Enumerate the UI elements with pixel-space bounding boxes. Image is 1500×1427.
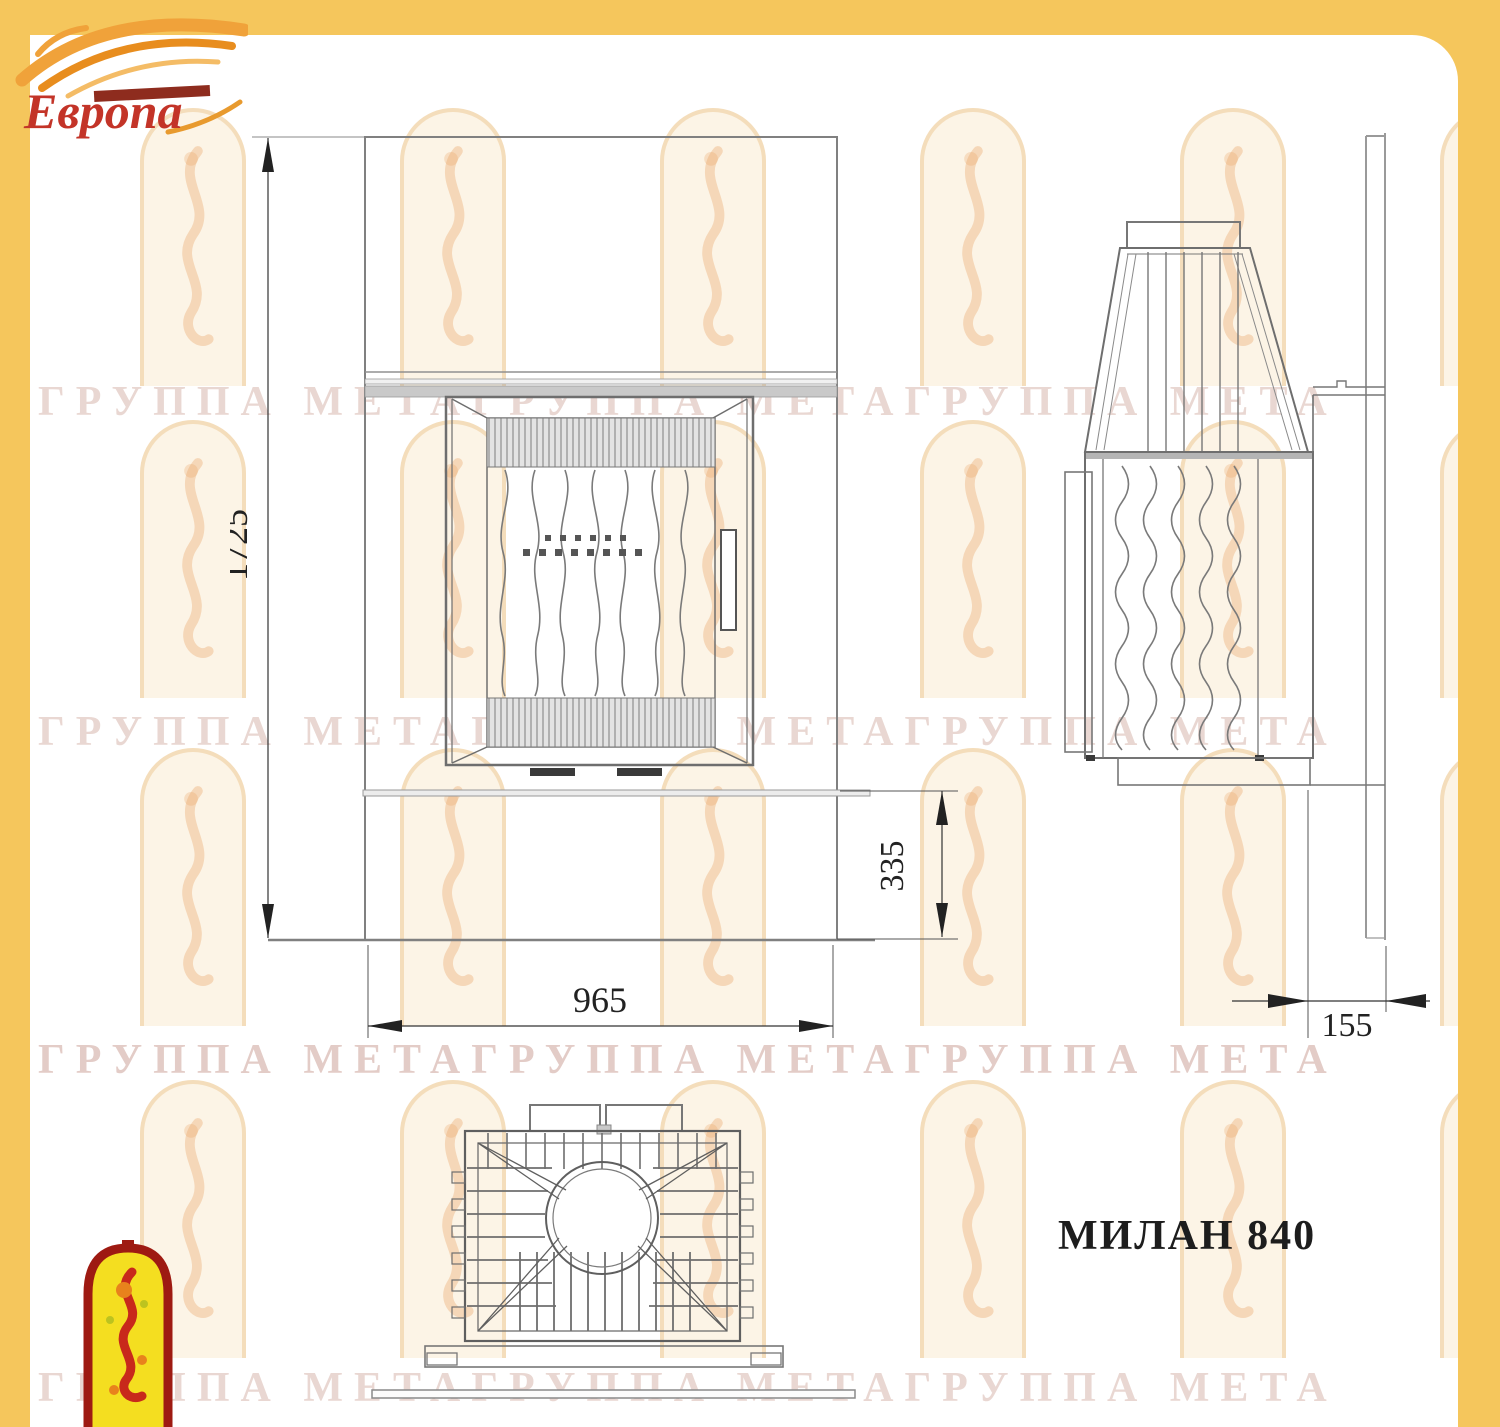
logo-wordmark: Европа (23, 83, 183, 139)
page: ГРУППА МЕТАГРУППА МЕТАГРУППА МЕТА ГРУППА… (0, 0, 1500, 1427)
firebird-emblem-icon (80, 1240, 176, 1427)
dimension-overall-width: 965 (368, 945, 833, 1038)
watermark-arch-icon (1440, 1080, 1458, 1358)
dimension-width-label: 965 (573, 980, 627, 1020)
side-view-drawing: 155 (1040, 120, 1460, 1060)
dimension-depth: 155 (1232, 790, 1430, 1044)
model-title: МИЛАН 840 (1058, 1212, 1418, 1260)
top-view-drawing (350, 1090, 900, 1410)
dimension-height-label: 1725 (230, 509, 255, 581)
europa-logo: Европа (8, 2, 248, 144)
flame-swoosh-icon: Европа (8, 2, 248, 144)
watermark-arch-icon (920, 1080, 1026, 1358)
front-view-drawing: 1725 335 965 (230, 120, 980, 1050)
dimension-depth-label: 155 (1322, 1007, 1373, 1044)
dimension-plinth-label: 335 (874, 841, 911, 892)
dimension-overall-height: 1725 (230, 138, 274, 938)
door-handle (721, 530, 736, 630)
dimension-plinth-height: 335 (837, 791, 958, 939)
